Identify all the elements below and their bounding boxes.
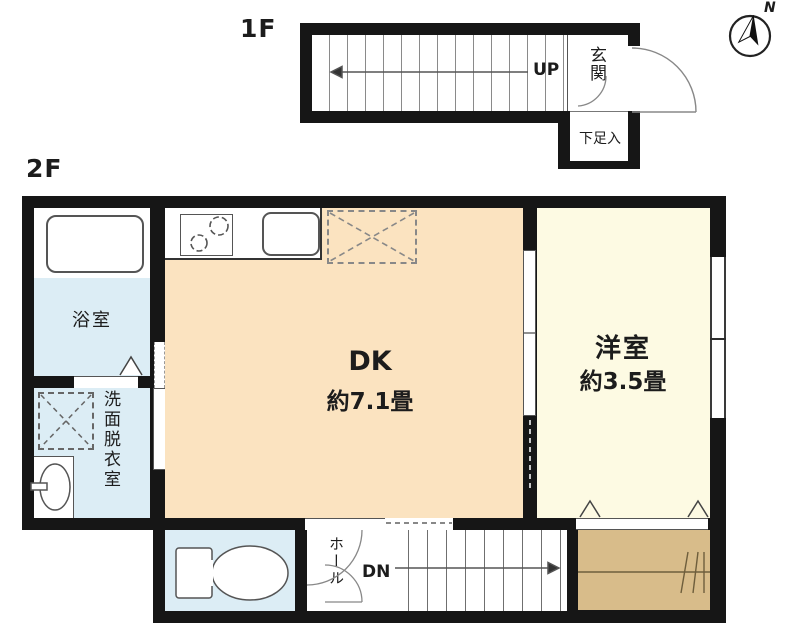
floor-plan: 1F 玄関 UP 下足入 N 2F 浴室 洗面脱衣室 DK — [0, 0, 788, 637]
stairwell-open-edge — [385, 518, 453, 530]
entrance-door-arc — [632, 48, 696, 112]
dk-label: DK — [300, 346, 440, 377]
compass-north-label: N — [764, 0, 776, 16]
f2-outside-notch — [22, 530, 153, 637]
f1-shoe-box-wall-bottom — [558, 161, 640, 169]
western-window-lower — [710, 340, 726, 418]
f1-stair-treads — [312, 35, 568, 111]
western-room-label: 洋室 — [553, 328, 693, 365]
washing-machine-space — [38, 392, 94, 450]
compass-icon — [722, 0, 788, 64]
bathroom-label: 浴室 — [34, 306, 150, 332]
f1-floor-gap — [570, 111, 628, 123]
balcony-floor — [578, 530, 710, 610]
hall-label: ホール — [326, 536, 347, 610]
western-window-upper — [710, 257, 726, 338]
f2-stair-treads — [390, 530, 567, 611]
washroom-sink-cabinet — [34, 456, 74, 518]
f1-up-label: UP — [533, 60, 559, 80]
dn-label: DN — [362, 562, 390, 582]
western-room-size-label: 約3.5畳 — [545, 362, 701, 396]
f1-entry-wall-opening — [628, 46, 640, 112]
balcony-door — [576, 518, 708, 530]
floor-1f-label: 1F — [240, 14, 276, 43]
hall-opening — [305, 518, 385, 530]
bathroom-door — [74, 376, 138, 388]
bathtub — [46, 215, 144, 273]
refrigerator-space — [327, 210, 417, 264]
washroom-dk-opening — [154, 342, 165, 388]
washroom-label: 洗面脱衣室 — [98, 390, 123, 518]
kitchen-sink — [262, 212, 320, 256]
f1-genkan-label: 玄関 — [584, 46, 609, 106]
floor-2f-label: 2F — [26, 154, 62, 183]
dk-western-door — [523, 250, 536, 416]
compass: N — [722, 0, 788, 64]
toilet-room-floor — [165, 530, 295, 611]
f1-genkan-partition — [567, 35, 568, 111]
kitchen-stove — [180, 214, 233, 256]
dk-size-label: 約7.1畳 — [290, 382, 450, 416]
f1-shoe-box-label: 下足入 — [572, 128, 628, 148]
